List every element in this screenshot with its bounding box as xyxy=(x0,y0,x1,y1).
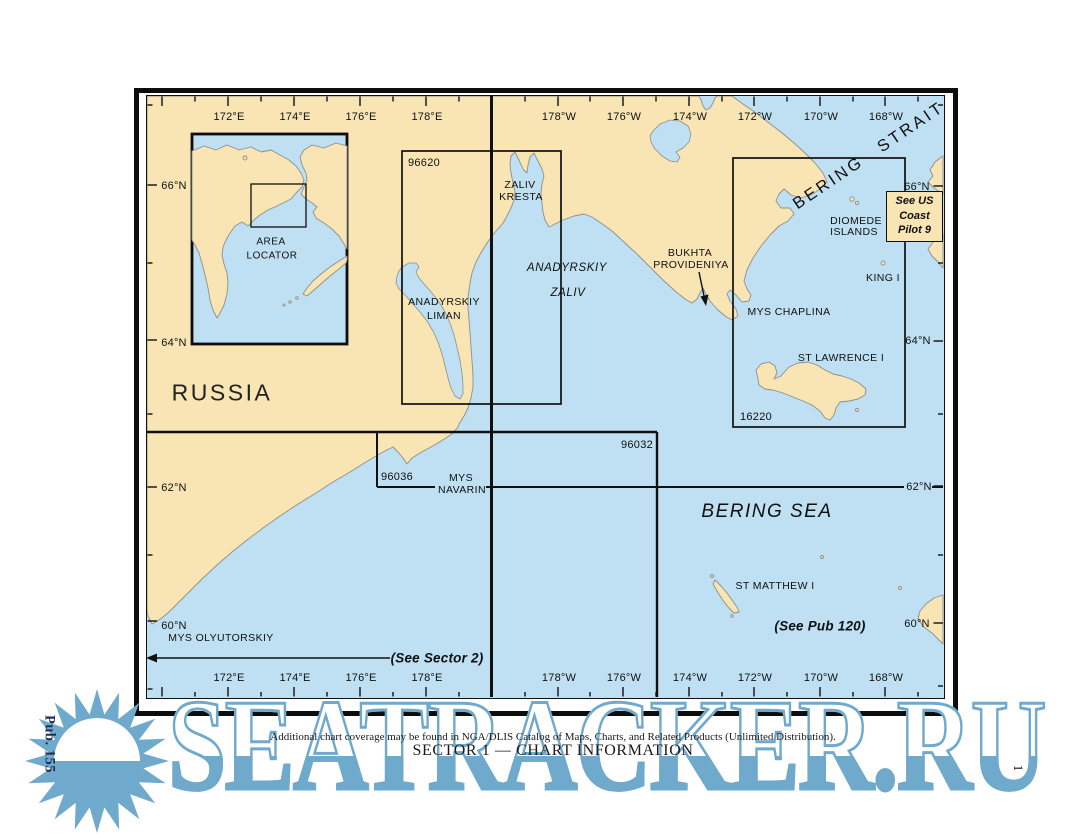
axis-left-64n: 64°N xyxy=(161,337,186,349)
coast-pilot-note-box: See US Coast Pilot 9 xyxy=(886,191,943,242)
diomede-island-small xyxy=(855,201,858,204)
axis-left-66n: 66°N xyxy=(161,180,186,192)
bering-sea-label: BERING SEA xyxy=(701,501,832,523)
area-locator-label-1: AREA xyxy=(256,237,285,248)
mys-olyutorskiy-label: MYS OLYUTORSKIY xyxy=(168,632,273,644)
chart-number-96032: 96032 xyxy=(621,439,653,451)
mys-navarin-label-1: MYS xyxy=(449,472,473,484)
axis-top-174w: 174°W xyxy=(673,111,707,123)
inset-wrangel-island xyxy=(243,156,247,160)
bukhta-provideniya-label-2: PROVIDENIYA xyxy=(653,259,728,271)
chart-number-96036: 96036 xyxy=(381,471,413,483)
axis-top-178w: 178°W xyxy=(542,111,576,123)
axis-top-176e: 176°E xyxy=(345,111,376,123)
inset-aleutian-dot1 xyxy=(296,297,299,300)
see-sector-2-note: (See Sector 2) xyxy=(391,651,484,666)
st-matthew-islet-south xyxy=(731,615,734,618)
mys-navarin-label-2: NAVARIN xyxy=(438,484,486,496)
axis-right-64n: 64°N xyxy=(905,335,930,347)
coast-pilot-line1: See US xyxy=(887,194,942,209)
sector-title: SECTOR 1 — CHART INFORMATION xyxy=(412,742,693,760)
anadyrskiy-liman-label-1: ANADYRSKIY xyxy=(408,296,480,308)
king-island xyxy=(881,261,885,265)
islet-near-nunivak xyxy=(899,587,902,590)
area-locator-label-2: LOCATOR xyxy=(247,251,298,262)
anadyrskiy-zaliv-label-2: ZALIV xyxy=(551,287,586,299)
axis-top-174e: 174°E xyxy=(279,111,310,123)
axis-top-168w: 168°W xyxy=(869,111,903,123)
mys-chaplina-label: MYS CHAPLINA xyxy=(748,306,831,318)
coast-pilot-line2: Coast xyxy=(887,209,942,224)
anadyrskiy-liman-label-2: LIMAN xyxy=(427,310,461,322)
diomede-islands-label-2: ISLANDS xyxy=(830,226,878,238)
st-lawrence-islet xyxy=(856,409,859,412)
axis-top-178e: 178°E xyxy=(411,111,442,123)
zaliv-kresta-label-2: KRESTA xyxy=(499,191,543,203)
chart-information-page: See US Coast Pilot 9 172°E 174°E 176°E 1… xyxy=(0,0,1080,834)
axis-right-60n: 60°N xyxy=(904,618,929,630)
bukhta-provideniya-label-1: BUKHTA xyxy=(668,247,712,259)
inset-aleutian-dot3 xyxy=(283,304,285,306)
publication-number: Pub. 155 xyxy=(41,715,58,773)
axis-top-176w: 176°W xyxy=(607,111,641,123)
st-matthew-islet-north xyxy=(711,575,714,578)
st-lawrence-label: ST LAWRENCE I xyxy=(798,352,884,364)
axis-left-62n: 62°N xyxy=(161,482,186,494)
axis-top-172w: 172°W xyxy=(738,111,772,123)
see-pub-120-note: (See Pub 120) xyxy=(774,619,865,634)
king-island-label: KING I xyxy=(866,272,900,284)
russia-label: RUSSIA xyxy=(172,380,273,407)
inset-aleutian-dot2 xyxy=(289,301,291,303)
page-number: 1 xyxy=(1010,765,1026,772)
anadyrskiy-zaliv-label-1: ANADYRSKIY xyxy=(527,262,607,274)
axis-right-62n: 62°N xyxy=(906,481,931,493)
axis-top-170w: 170°W xyxy=(804,111,838,123)
zaliv-kresta-label-1: ZALIV xyxy=(504,179,535,191)
axis-top-172e: 172°E xyxy=(213,111,244,123)
chart-number-16220: 16220 xyxy=(740,411,772,423)
axis-left-60n: 60°N xyxy=(161,620,186,632)
coast-pilot-line3: Pilot 9 xyxy=(887,223,942,238)
islet xyxy=(821,556,824,559)
st-matthew-label: ST MATTHEW I xyxy=(735,580,814,592)
diomede-island-big xyxy=(850,197,854,201)
chart-number-96620: 96620 xyxy=(408,157,440,169)
